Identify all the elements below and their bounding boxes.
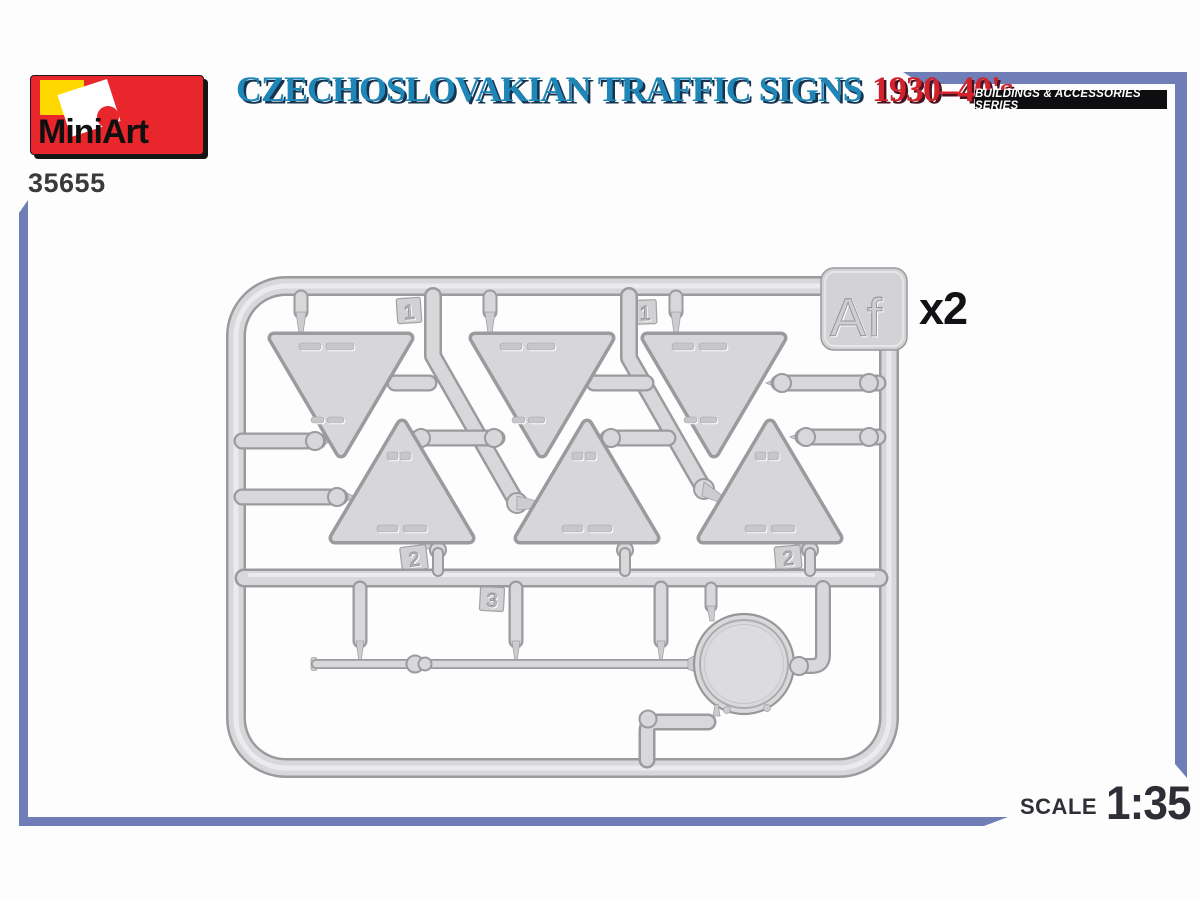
triangle-sign-parts: [274, 338, 837, 538]
tag-1a: 1: [403, 302, 416, 325]
drop-pins: [356, 588, 665, 661]
boxart-page: MiniArt 35655 CZECHOSLOVAKIAN TRAFFIC SI…: [0, 0, 1200, 900]
sprue-letter-tab: Af: [821, 268, 907, 350]
sprue-letter: Af: [830, 288, 883, 348]
tag-1b: 1: [639, 303, 651, 325]
tag-2b: 2: [782, 548, 795, 571]
tag-3: 3: [486, 590, 498, 613]
sprue-diagram: 1 1 2 2 3: [0, 0, 1200, 900]
